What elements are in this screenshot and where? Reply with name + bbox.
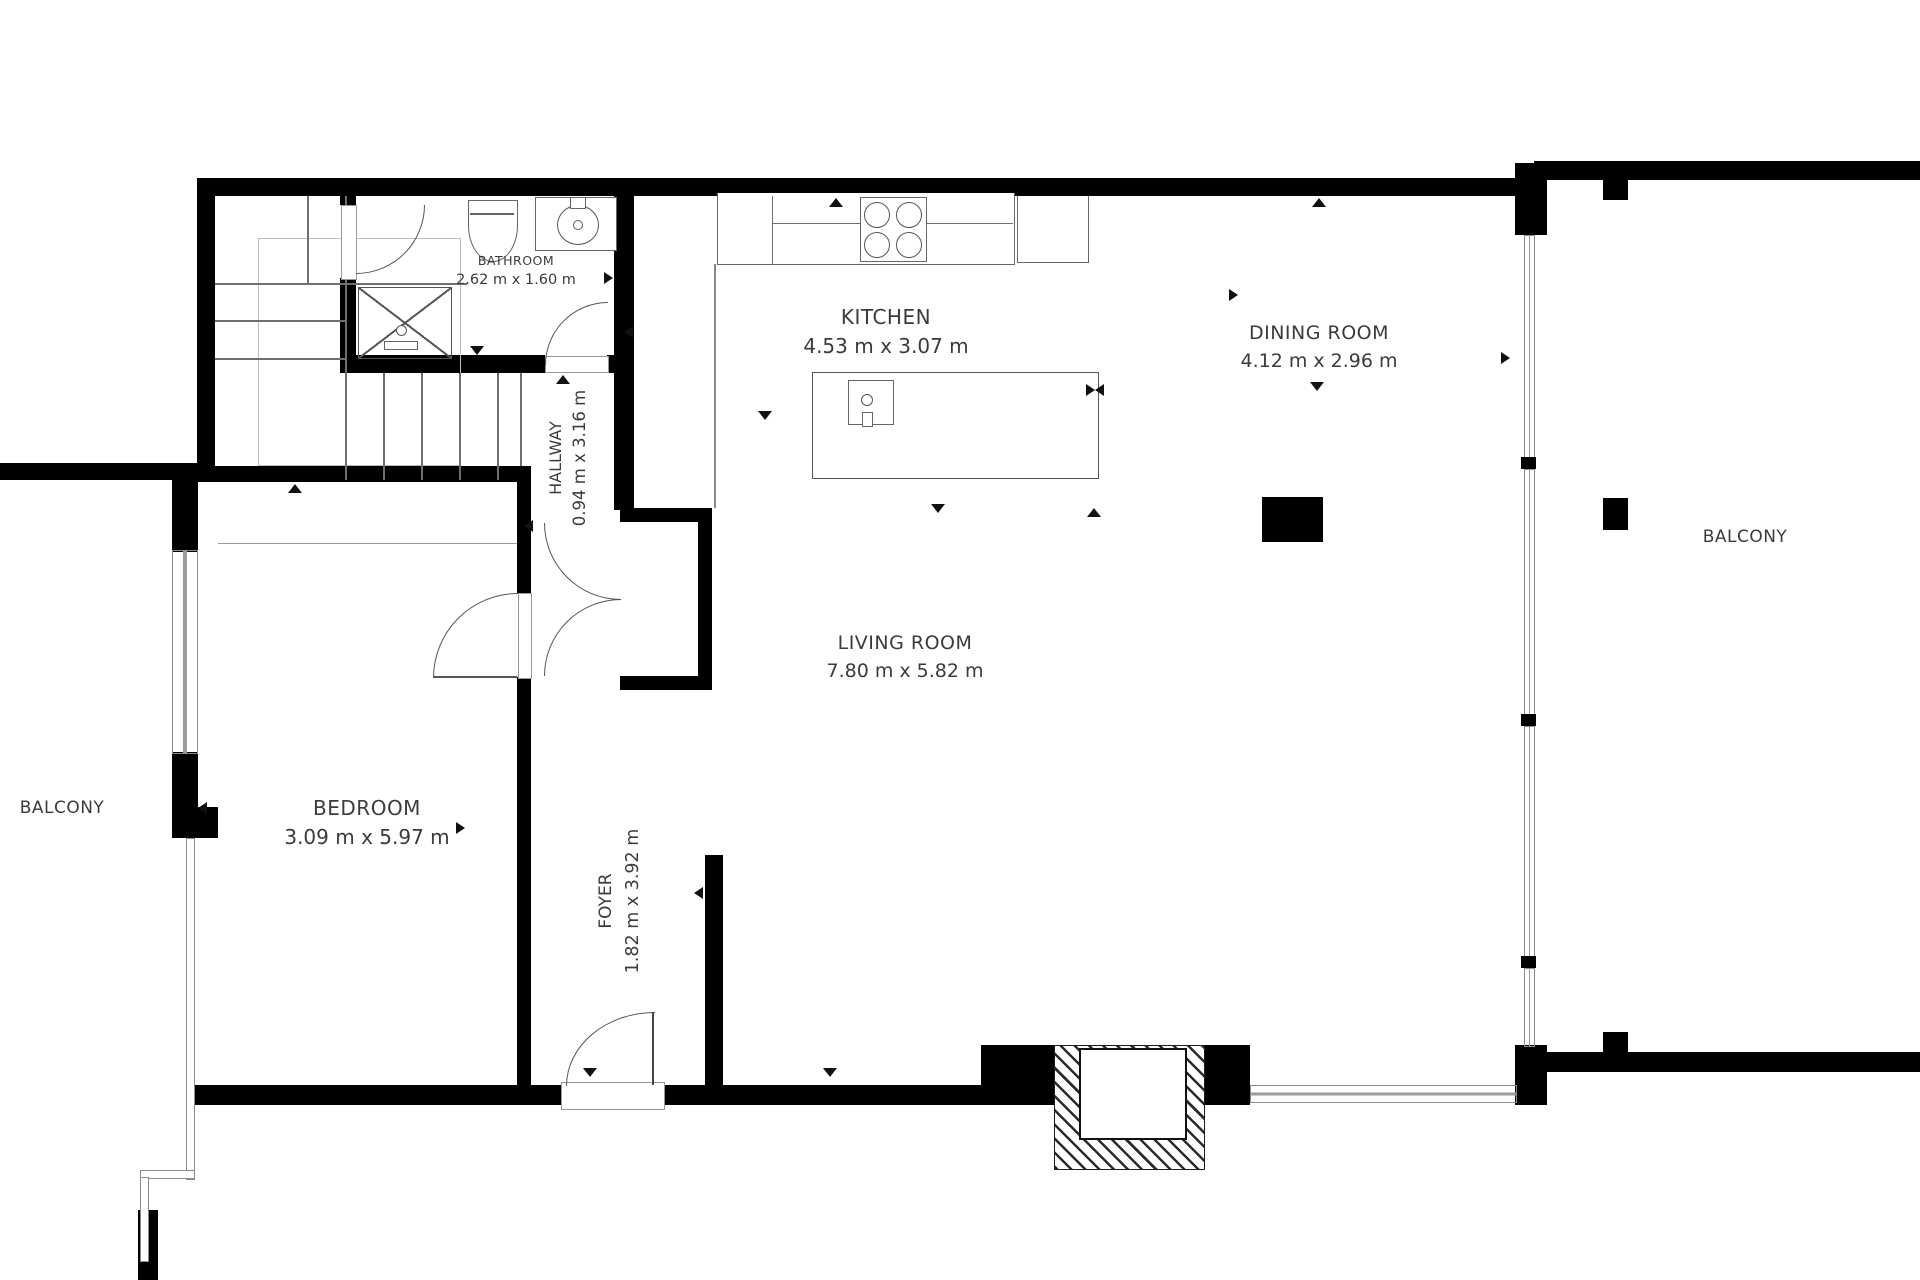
- balcony-left-name: BALCONY: [2, 796, 122, 821]
- hallway-dims: 0.94 m x 3.16 m: [568, 390, 593, 526]
- window-living-right-2: [1524, 469, 1535, 716]
- window-living-right-3: [1524, 726, 1535, 958]
- wall-bedroom-top: [192, 466, 531, 482]
- stairs-side: [345, 283, 347, 480]
- stairs-landing-v1: [307, 196, 309, 283]
- room-label-kitchen: KITCHEN 4.53 m x 3.07 m: [746, 303, 1026, 361]
- stairs-guide-h2: [258, 465, 460, 466]
- room-label-bathroom: BATHROOM 2.62 m x 1.60 m: [406, 252, 626, 291]
- stove-burner-4: [896, 232, 922, 258]
- window-bedroom-left: [172, 550, 198, 754]
- kitchen-appliance-block: [1017, 196, 1089, 263]
- bathroom-door-leaf: [341, 205, 357, 280]
- wall-hall-right: [614, 196, 634, 510]
- bedroom-door-swing-line: [433, 676, 517, 678]
- stairs-tread-h3: [215, 358, 345, 360]
- dining-name: DINING ROOM: [1179, 320, 1459, 348]
- foyer-name: FOYER: [594, 873, 620, 928]
- pillar-bottom-right: [1515, 1045, 1547, 1105]
- dim-bowtie-island-r: [1086, 384, 1095, 396]
- room-label-living: LIVING ROOM 7.80 m x 5.82 m: [765, 630, 1045, 685]
- entry-threshold: [561, 1082, 665, 1110]
- sink-tap-icon: [570, 197, 586, 209]
- bedroom-name: BEDROOM: [227, 794, 507, 823]
- toilet-seat-line: [470, 213, 514, 215]
- stove-burner-3: [864, 232, 890, 258]
- living-name: LIVING ROOM: [765, 630, 1045, 658]
- dim-arrow-right-window: [1501, 352, 1510, 364]
- dim-bowtie-island-l: [1095, 384, 1104, 396]
- island-sink-tap: [862, 412, 873, 427]
- dim-arrow-left-bedroomwall: [524, 520, 533, 532]
- kitchen-dims: 4.53 m x 3.07 m: [746, 332, 1026, 361]
- closet-door-lower-arc: [544, 599, 621, 676]
- kitchen-zone-line: [714, 264, 716, 508]
- wall-bedroom-left-a: [172, 478, 198, 552]
- dim-arrow-down-entry: [583, 1068, 597, 1077]
- dim-arrow-up-dining-wall: [1312, 198, 1326, 207]
- dim-arrow-down-dining: [1310, 382, 1324, 391]
- wall-closet-bottom: [620, 676, 712, 690]
- bedroom-dims: 3.09 m x 5.97 m: [227, 823, 507, 852]
- dim-arrow-right-bedroom: [456, 822, 465, 834]
- foyer-dims: 1.82 m x 3.92 m: [620, 829, 646, 974]
- railing-balcony-left-v: [186, 838, 195, 1180]
- stairs-tread-v3: [459, 373, 461, 480]
- room-label-balcony-left: BALCONY: [2, 796, 122, 821]
- column-dining: [1262, 497, 1323, 542]
- room-label-bedroom: BEDROOM 3.09 m x 5.97 m: [227, 794, 507, 852]
- bedroom-door-leaf: [518, 593, 532, 679]
- floor-plan: BATHROOM 2.62 m x 1.60 m KITCHEN 4.53 m …: [0, 0, 1920, 1280]
- window-tick-1: [1521, 457, 1536, 469]
- dim-arrow-left-pillar: [198, 802, 207, 814]
- room-label-balcony-right: BALCONY: [1670, 525, 1820, 550]
- fireplace-firebox: [1079, 1048, 1187, 1140]
- stove-burner-1: [864, 202, 890, 228]
- dim-arrow-left-foyerwall: [694, 887, 703, 899]
- stove-burner-2: [896, 202, 922, 228]
- bathroom-name: BATHROOM: [406, 252, 626, 270]
- dim-arrow-up-island: [1087, 508, 1101, 517]
- window-living-right-4: [1524, 968, 1535, 1047]
- railing-balcony-left-v2: [140, 1177, 149, 1262]
- dim-arrow-down-bath: [470, 346, 484, 355]
- window-living-bottom: [1250, 1085, 1517, 1103]
- wall-bedroom-left-pillar: [172, 752, 198, 838]
- dim-arrow-left-hallwall: [624, 326, 633, 338]
- dim-arrow-down-island: [931, 504, 945, 513]
- wall-balcony-right-top: [1534, 161, 1920, 180]
- dim-arrow-down-living-bottom: [823, 1068, 837, 1077]
- shower-mixer-head: [396, 325, 407, 336]
- stairs-tread-v2: [421, 373, 423, 480]
- wall-bedroom-right-b: [517, 677, 531, 1105]
- stairs-tread-h2: [215, 320, 345, 322]
- island-sink-drain: [861, 394, 873, 406]
- dim-arrow-right-bathwall: [604, 272, 613, 284]
- wall-bathroom-left: [340, 194, 356, 205]
- window-living-right-1: [1524, 235, 1535, 459]
- window-tick-3: [1521, 956, 1536, 968]
- sink-drain: [573, 220, 583, 230]
- shower-mixer-bar: [384, 341, 418, 350]
- balcony-right-name: BALCONY: [1670, 525, 1820, 550]
- dining-dims: 4.12 m x 2.96 m: [1179, 348, 1459, 376]
- stairs-edge: [520, 373, 522, 466]
- dim-arrow-up-bedroom-top: [288, 484, 302, 493]
- bedroom-door-arc: [433, 593, 518, 678]
- wall-left-upper: [197, 178, 215, 480]
- wall-bottom-mid: [655, 1085, 981, 1105]
- wall-closet-top: [620, 508, 712, 522]
- wall-closet-right: [698, 522, 712, 676]
- kitchen-counter-divider: [772, 196, 773, 264]
- room-label-hallway: HALLWAY 0.94 m x 3.16 m: [545, 358, 591, 558]
- kitchen-name: KITCHEN: [746, 303, 1026, 332]
- dim-arrow-up-kitchen-wall: [829, 198, 843, 207]
- living-dims: 7.80 m x 5.82 m: [765, 658, 1045, 686]
- stairs-guide-v: [258, 238, 259, 465]
- wall-foyer-right: [705, 855, 723, 1105]
- wall-bottom-left: [190, 1085, 567, 1105]
- stairs-tread-v1: [383, 373, 385, 480]
- bathroom-dims: 2.62 m x 1.60 m: [406, 270, 626, 291]
- dim-arrow-down-kitchen-zone: [758, 411, 772, 420]
- window-tick-2: [1521, 714, 1536, 726]
- entry-door-arc: [566, 1012, 655, 1086]
- bathroom-hall-door-arc: [545, 302, 608, 365]
- hallway-name: HALLWAY: [544, 421, 568, 495]
- wardrobe-line: [218, 543, 517, 544]
- column-balcony-top: [1603, 180, 1628, 200]
- column-balcony-floor: [1603, 498, 1628, 530]
- wall-balcony-right-bottom: [1547, 1052, 1920, 1072]
- column-balcony-bottom: [1603, 1032, 1628, 1052]
- entry-door-leaf: [652, 1012, 654, 1085]
- room-label-foyer: FOYER 1.82 m x 3.92 m: [596, 801, 644, 1001]
- dim-arrow-right-dining: [1229, 289, 1238, 301]
- room-label-dining: DINING ROOM 4.12 m x 2.96 m: [1179, 320, 1459, 375]
- stairs-tread-v4: [497, 373, 499, 480]
- dim-arrow-up-hall: [556, 375, 570, 384]
